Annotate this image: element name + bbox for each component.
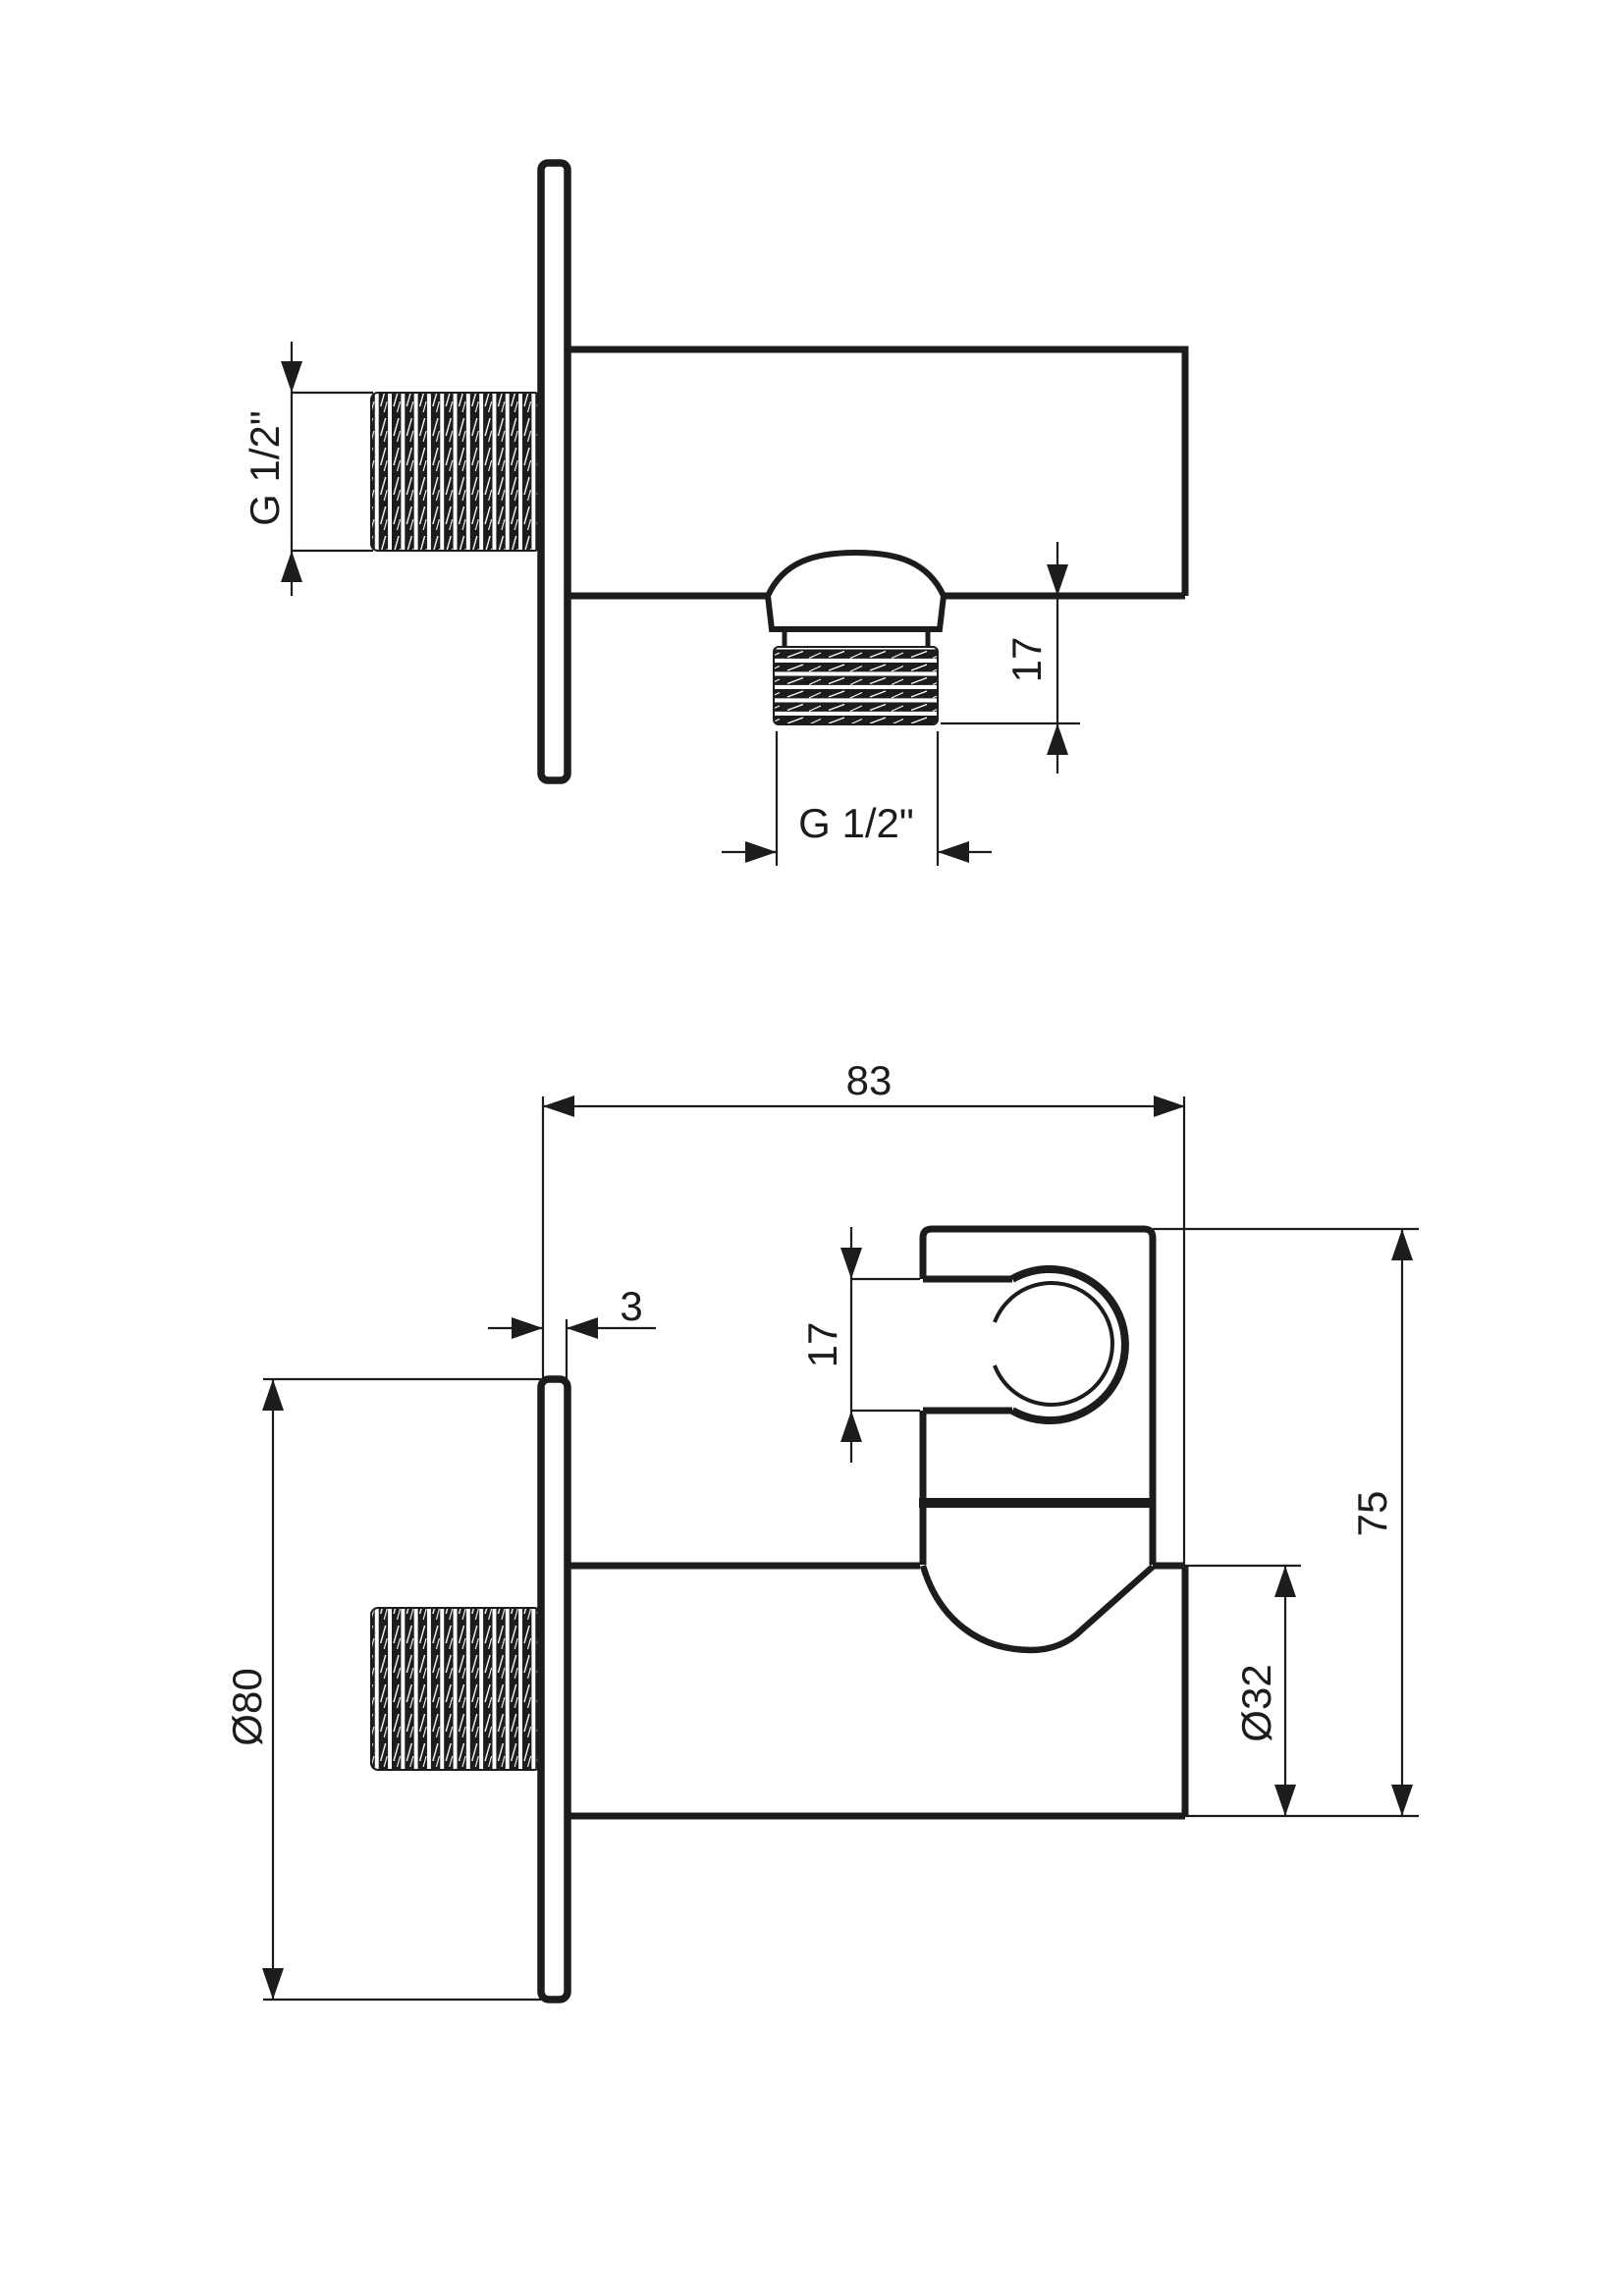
sheet-background bbox=[0, 0, 1624, 2296]
dim-label-plate-thickness: 3 bbox=[620, 1283, 642, 1329]
dim-label-outlet-thread: G 1/2" bbox=[798, 800, 914, 846]
inlet-thread bbox=[371, 1608, 541, 1770]
dim-label-holder-slot: 17 bbox=[799, 1322, 845, 1368]
drawing-sheet: G 1/2" 17 G 1/2" bbox=[0, 0, 1624, 2296]
drawing-canvas: G 1/2" 17 G 1/2" bbox=[0, 0, 1624, 2296]
outlet-dome-cap bbox=[768, 553, 944, 629]
dim-label-inlet-thread: G 1/2" bbox=[242, 410, 288, 526]
dim-label-body-diameter: Ø32 bbox=[1233, 1664, 1279, 1741]
outlet-thread bbox=[774, 647, 938, 724]
dim-label-overall-height: 75 bbox=[1349, 1491, 1395, 1537]
wall-plate bbox=[541, 163, 568, 780]
inlet-thread bbox=[371, 393, 541, 551]
dim-label-plate-diameter: Ø80 bbox=[224, 1668, 270, 1745]
dim-label-overall-depth: 83 bbox=[846, 1057, 893, 1103]
dim-label-outlet-length: 17 bbox=[1003, 637, 1050, 683]
wall-plate bbox=[541, 1379, 568, 2000]
